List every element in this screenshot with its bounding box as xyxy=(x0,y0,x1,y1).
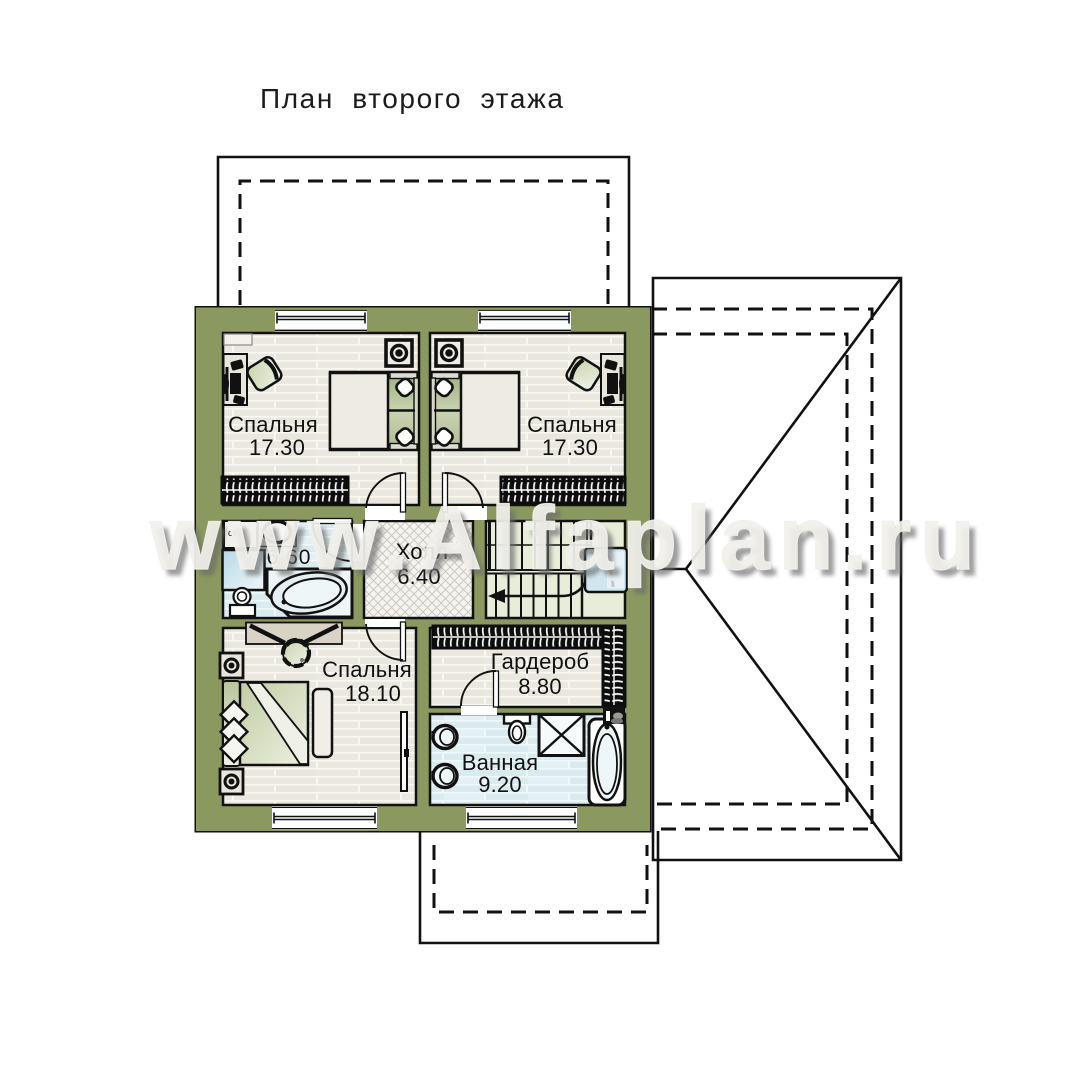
svg-text:Спальня: Спальня xyxy=(322,657,412,682)
svg-text:8.80: 8.80 xyxy=(518,674,562,699)
svg-text:17.30: 17.30 xyxy=(542,435,598,460)
svg-text:18.10: 18.10 xyxy=(345,681,401,706)
svg-text:План второго этажа: План второго этажа xyxy=(260,83,565,114)
svg-text:www.Alfaplan.ru: www.Alfaplan.ru xyxy=(149,489,984,589)
svg-text:Спальня: Спальня xyxy=(228,412,318,437)
svg-text:9.20: 9.20 xyxy=(478,772,522,797)
svg-text:Гардероб: Гардероб xyxy=(491,649,589,674)
svg-text:17.30: 17.30 xyxy=(249,435,305,460)
svg-text:Спальня: Спальня xyxy=(527,412,617,437)
